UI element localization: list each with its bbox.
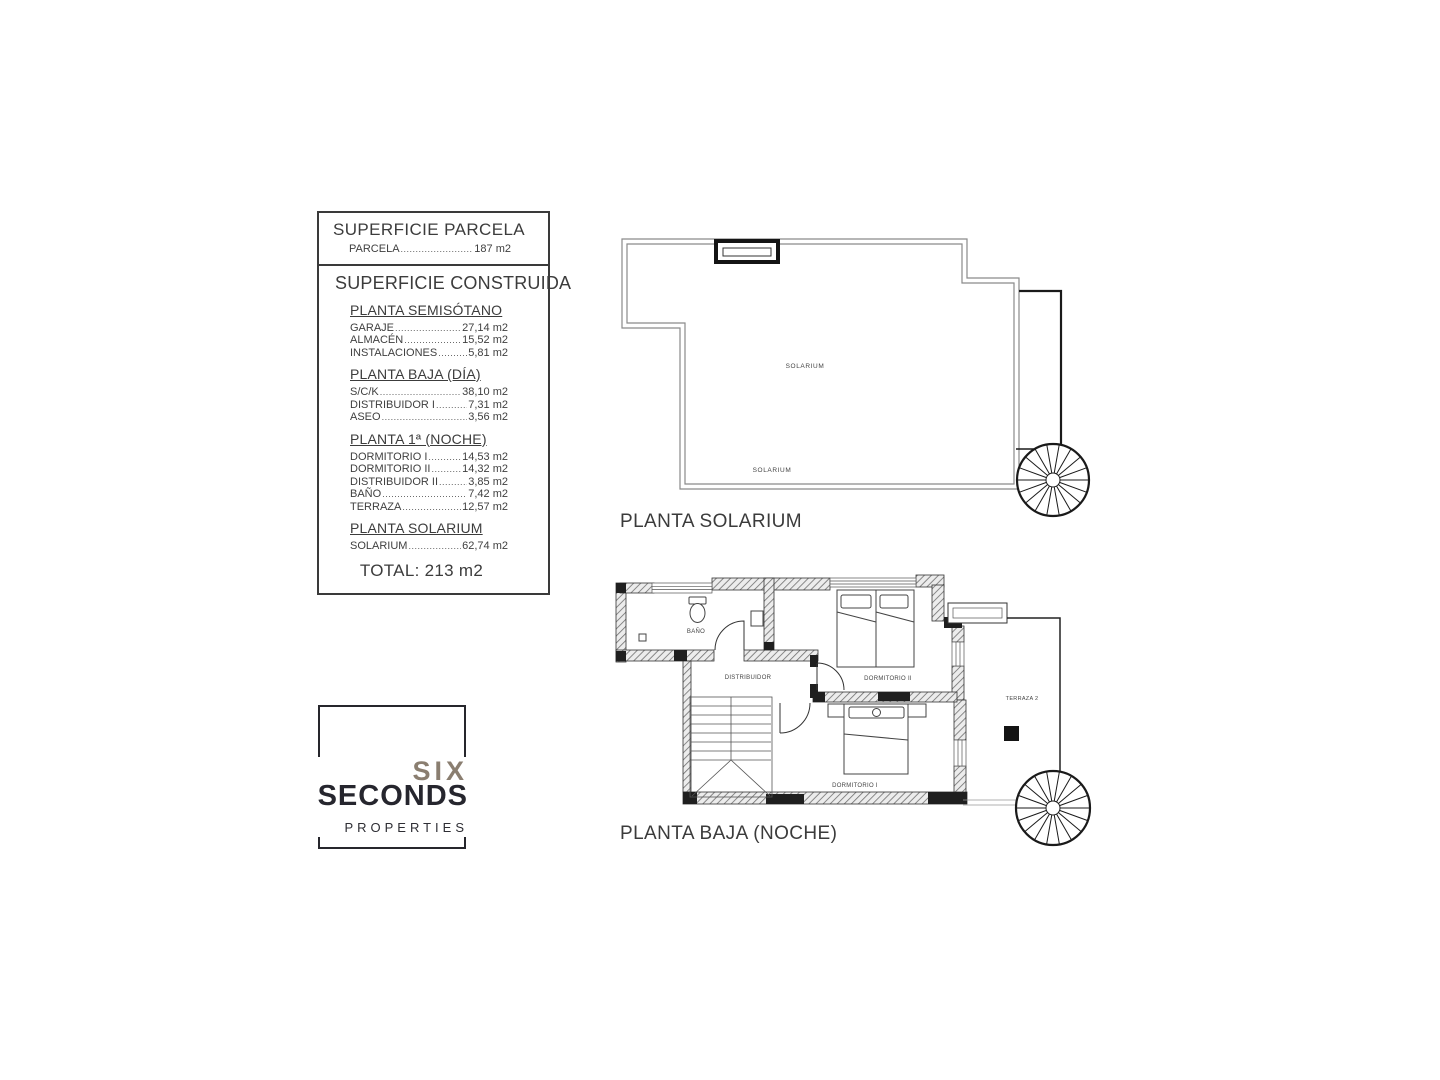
area-row-label: DISTRIBUIDOR I — [350, 399, 435, 412]
group-title: PLANTA BAJA (DÍA) — [350, 366, 508, 383]
room-label-bedroom2: DORMITORIO II — [864, 676, 912, 682]
dot-leader — [395, 322, 461, 335]
area-row-value: 3,56 m2 — [468, 411, 508, 424]
area-row-bano: BAÑO7,42 m2 — [350, 488, 508, 501]
group-title: PLANTA SOLARIUM — [350, 520, 508, 537]
dot-leader — [408, 540, 461, 553]
dot-leader — [380, 386, 461, 399]
room-label-solarium-center: SOLARIUM — [786, 363, 825, 370]
staircase-icon — [690, 697, 772, 797]
dot-leader — [382, 488, 467, 501]
area-row-value: 7,31 m2 — [468, 399, 508, 412]
dot-leader — [431, 463, 461, 476]
area-row-garaje: GARAJE27,14 m2 — [350, 322, 508, 335]
spiral-staircase-icon — [1017, 444, 1089, 516]
area-row-label: DORMITORIO II — [350, 463, 430, 476]
night-plan-drawing: BAÑO DISTRIBUIDOR DORMITORIO II DORMITOR… — [610, 565, 1110, 865]
dot-leader — [439, 476, 467, 489]
area-row-label: TERRAZA — [350, 501, 401, 514]
area-row-value: 15,52 m2 — [462, 334, 508, 347]
floorplan-page: SUPERFICIE PARCELA PARCELA 187 m2 SUPERF… — [0, 0, 1440, 1080]
six-seconds-logo: SIX SECONDS PROPERTIES — [318, 705, 466, 849]
room-label-terrace: TERRAZA 2 — [1006, 696, 1039, 702]
area-row-value: 5,81 m2 — [468, 347, 508, 360]
area-row-value: 27,14 m2 — [462, 322, 508, 335]
total-area: TOTAL: 213 m2 — [335, 561, 508, 581]
area-row-label: PARCELA — [349, 243, 400, 256]
area-row-label: INSTALACIONES — [350, 347, 437, 360]
logo-word-properties: PROPERTIES — [318, 820, 468, 835]
area-row-label: ASEO — [350, 411, 381, 424]
area-row-value: 3,85 m2 — [468, 476, 508, 489]
terrace-planter-icon — [1004, 726, 1019, 741]
surface-area-table: SUPERFICIE PARCELA PARCELA 187 m2 SUPERF… — [317, 211, 550, 595]
sink-icon — [751, 611, 763, 626]
room-label-solarium-bottom: SOLARIUM — [753, 467, 792, 474]
built-section-title: SUPERFICIE CONSTRUIDA — [335, 271, 508, 295]
dot-leader — [428, 451, 461, 464]
room-label-bath: BAÑO — [687, 628, 705, 635]
logo-text: SIX SECONDS PROPERTIES — [312, 757, 469, 837]
area-row-label: DISTRIBUIDOR II — [350, 476, 438, 489]
dot-leader — [402, 501, 461, 514]
area-row-value: 14,32 m2 — [462, 463, 508, 476]
area-row-label: S/C/K — [350, 386, 379, 399]
area-row-sck: S/C/K38,10 m2 — [350, 386, 508, 399]
area-row-distribuidor2: DISTRIBUIDOR II3,85 m2 — [350, 476, 508, 489]
dot-leader — [438, 347, 467, 360]
area-row-label: GARAJE — [350, 322, 394, 335]
group-title: PLANTA 1ª (NOCHE) — [350, 431, 508, 448]
logo-word-seconds: SECONDS — [318, 783, 468, 810]
floor-drain-icon — [639, 634, 646, 641]
bedroom1-bed-icon — [828, 704, 926, 774]
area-row-terraza: TERRAZA12,57 m2 — [350, 501, 508, 514]
area-row-dormitorio2: DORMITORIO II14,32 m2 — [350, 463, 508, 476]
area-row-value: 7,42 m2 — [468, 488, 508, 501]
area-row-value: 12,57 m2 — [462, 501, 508, 514]
group-planta-semisotano: PLANTA SEMISÓTANO GARAJE27,14 m2 ALMACÉN… — [350, 302, 508, 360]
area-row-solarium: SOLARIUM62,74 m2 — [350, 540, 508, 553]
area-row-distribuidor1: DISTRIBUIDOR I7,31 m2 — [350, 399, 508, 412]
group-planta-baja-dia: PLANTA BAJA (DÍA) S/C/K38,10 m2 DISTRIBU… — [350, 366, 508, 424]
spiral-staircase-icon — [1016, 771, 1090, 845]
area-row-aseo: ASEO3,56 m2 — [350, 411, 508, 424]
night-plan-title: PLANTA BAJA (NOCHE) — [620, 823, 837, 845]
dot-leader — [404, 334, 461, 347]
dot-leader — [436, 399, 467, 412]
area-row-label: SOLARIUM — [350, 540, 407, 553]
toilet-icon — [689, 597, 706, 623]
area-row-almacen: ALMACÉN15,52 m2 — [350, 334, 508, 347]
area-row-value: 187 m2 — [474, 243, 511, 256]
solarium-plan-drawing: SOLARIUM SOLARIUM — [610, 225, 1110, 537]
room-label-hall: DISTRIBUIDOR — [725, 675, 772, 681]
area-row-instalaciones: INSTALACIONES5,81 m2 — [350, 347, 508, 360]
group-title: PLANTA SEMISÓTANO — [350, 302, 508, 319]
dot-leader — [382, 411, 468, 424]
parcel-section-title: SUPERFICIE PARCELA — [333, 219, 536, 241]
area-row-parcela: PARCELA 187 m2 — [349, 243, 511, 256]
solarium-terrace-edge — [1016, 291, 1061, 449]
parcel-section: SUPERFICIE PARCELA PARCELA 187 m2 — [319, 213, 548, 266]
built-section: SUPERFICIE CONSTRUIDA PLANTA SEMISÓTANO … — [319, 266, 548, 593]
solarium-plan-title: PLANTA SOLARIUM — [620, 511, 802, 533]
area-row-value: 14,53 m2 — [462, 451, 508, 464]
skylight — [716, 241, 778, 262]
group-planta-solarium: PLANTA SOLARIUM SOLARIUM62,74 m2 — [350, 520, 508, 553]
bedroom2-beds-icon — [837, 590, 914, 667]
group-planta-1-noche: PLANTA 1ª (NOCHE) DORMITORIO I14,53 m2 D… — [350, 431, 508, 514]
area-row-value: 62,74 m2 — [462, 540, 508, 553]
area-row-label: ALMACÉN — [350, 334, 403, 347]
room-label-bedroom1: DORMITORIO I — [832, 783, 878, 789]
area-row-dormitorio1: DORMITORIO I14,53 m2 — [350, 451, 508, 464]
dot-leader — [401, 243, 474, 256]
area-row-label: BAÑO — [350, 488, 381, 501]
area-row-value: 38,10 m2 — [462, 386, 508, 399]
area-row-label: DORMITORIO I — [350, 451, 427, 464]
